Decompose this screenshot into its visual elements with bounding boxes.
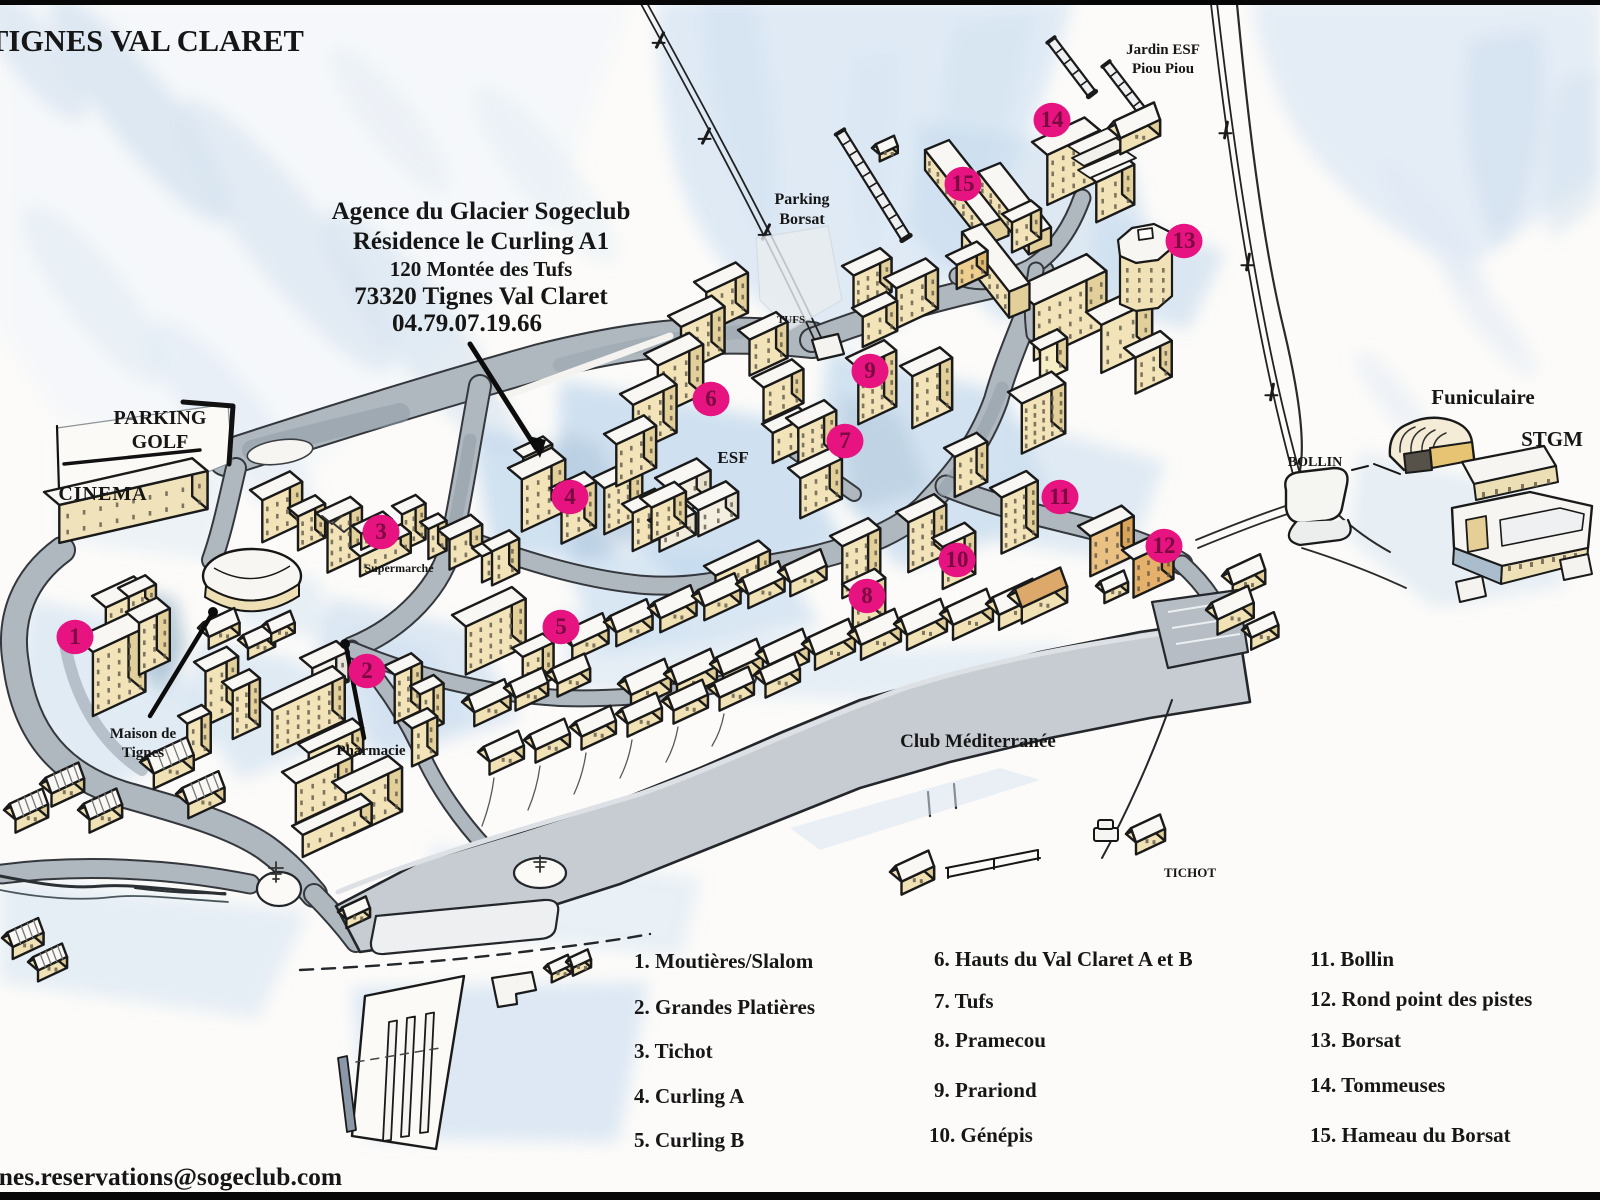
svg-text:9: 9 — [864, 358, 876, 383]
svg-text:12: 12 — [1153, 533, 1176, 558]
svg-text:11: 11 — [1049, 484, 1071, 509]
svg-text:13. Borsat: 13. Borsat — [1310, 1028, 1401, 1052]
svg-text:15: 15 — [952, 171, 975, 196]
svg-text:8: 8 — [861, 583, 873, 608]
svg-text:3: 3 — [375, 519, 387, 544]
svg-text:TICHOT: TICHOT — [1164, 865, 1216, 880]
svg-text:ESF: ESF — [717, 448, 748, 467]
svg-text:GOLF: GOLF — [132, 431, 189, 453]
svg-text:BOLLIN: BOLLIN — [1288, 455, 1342, 470]
svg-text:TIGNES VAL CLARET: TIGNES VAL CLARET — [0, 24, 304, 58]
svg-text:Borsat: Borsat — [779, 211, 825, 228]
svg-text:Supermarché: Supermarché — [364, 561, 434, 575]
svg-text:73320 Tignes Val Claret: 73320 Tignes Val Claret — [354, 283, 608, 310]
svg-text:4. Curling A: 4. Curling A — [634, 1084, 745, 1108]
svg-text:13: 13 — [1173, 228, 1196, 253]
svg-text:10: 10 — [946, 547, 969, 572]
svg-text:CINEMA: CINEMA — [58, 483, 147, 505]
svg-text:Tignes: Tignes — [122, 745, 164, 761]
svg-text:Agence du Glacier Sogeclub: Agence du Glacier Sogeclub — [332, 198, 631, 225]
svg-text:5: 5 — [555, 614, 567, 639]
svg-text:Pharmacie: Pharmacie — [336, 743, 405, 759]
svg-text:2: 2 — [361, 658, 373, 683]
svg-text:5. Curling B: 5. Curling B — [634, 1128, 744, 1152]
svg-text:gnes.reservations@sogeclub.com: gnes.reservations@sogeclub.com — [0, 1162, 342, 1191]
svg-text:1. Moutières/Slalom: 1. Moutières/Slalom — [634, 949, 814, 973]
svg-text:Résidence le Curling A1: Résidence le Curling A1 — [353, 228, 609, 255]
svg-text:7: 7 — [839, 428, 851, 453]
svg-text:Maison de: Maison de — [110, 726, 177, 742]
svg-text:STGM: STGM — [1521, 427, 1583, 451]
svg-text:Jardin ESF: Jardin ESF — [1126, 42, 1200, 58]
svg-text:TUFS: TUFS — [777, 314, 805, 326]
svg-text:14. Tommeuses: 14. Tommeuses — [1310, 1073, 1445, 1097]
svg-text:Funiculaire: Funiculaire — [1431, 385, 1534, 409]
svg-text:1: 1 — [69, 624, 81, 649]
svg-text:15. Hameau du Borsat: 15. Hameau du Borsat — [1310, 1123, 1511, 1147]
svg-text:Parking: Parking — [774, 191, 829, 208]
svg-text:7. Tufs: 7. Tufs — [934, 989, 994, 1013]
svg-text:4: 4 — [564, 484, 576, 509]
svg-text:3. Tichot: 3. Tichot — [634, 1039, 713, 1063]
svg-text:10. Génépis: 10. Génépis — [929, 1123, 1033, 1147]
svg-text:2. Grandes Platières: 2. Grandes Platières — [634, 995, 815, 1019]
svg-text:Piou Piou: Piou Piou — [1132, 61, 1194, 77]
svg-text:6: 6 — [705, 386, 717, 411]
svg-text:Club Méditerranée: Club Méditerranée — [900, 731, 1056, 752]
svg-text:8. Pramecou: 8. Pramecou — [934, 1028, 1046, 1052]
svg-text:11. Bollin: 11. Bollin — [1310, 947, 1394, 971]
svg-text:12. Rond point des pistes: 12. Rond point des pistes — [1310, 987, 1532, 1011]
svg-text:04.79.07.19.66: 04.79.07.19.66 — [392, 310, 542, 337]
svg-text:120 Montée des Tufs: 120 Montée des Tufs — [390, 257, 573, 281]
svg-text:PARKING: PARKING — [114, 407, 207, 429]
svg-text:6. Hauts du Val Claret A et B: 6. Hauts du Val Claret A et B — [934, 947, 1193, 971]
svg-text:14: 14 — [1041, 107, 1065, 132]
svg-text:9. Prariond: 9. Prariond — [934, 1078, 1037, 1102]
